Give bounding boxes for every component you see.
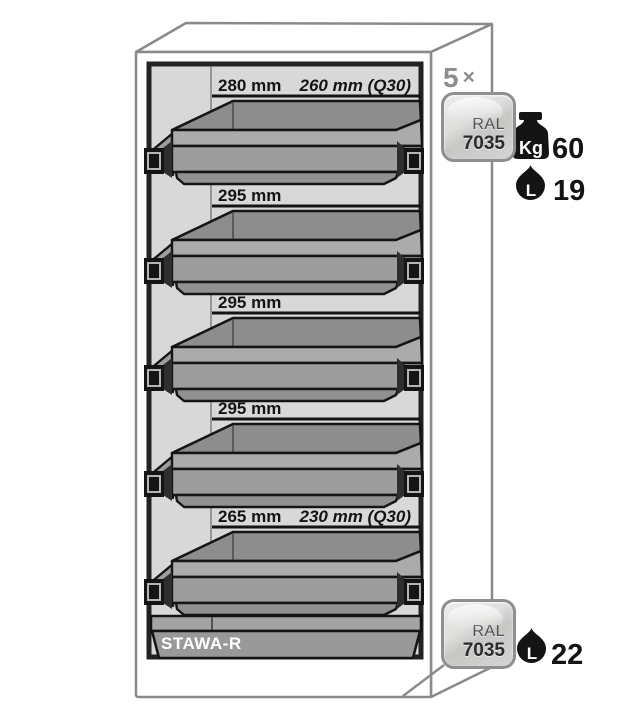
shelf-depth-label: 295 mm <box>218 294 281 311</box>
shelf-depth-label: 295 mm <box>218 187 281 204</box>
ral-color-badge-sump: RAL 7035 <box>441 599 516 669</box>
volume-unit-label-top: L <box>516 182 546 199</box>
volume-unit-label-bottom: L <box>517 645 547 662</box>
shelf-dimensions-row-3: 295 mm <box>212 290 411 311</box>
shelf-q30-depth-label: 230 mm (Q30) <box>300 508 412 525</box>
shelf-multiplier-count: 5 <box>443 62 459 93</box>
ral-name: RAL <box>472 117 505 134</box>
weight-unit-label: Kg <box>513 139 549 157</box>
shelf-q30-depth-label: 260 mm (Q30) <box>300 77 412 94</box>
sump-volume-value: 22 <box>551 641 583 670</box>
ral-color-badge-shelves: RAL 7035 <box>441 92 516 162</box>
shelf-depth-label: 295 mm <box>218 400 281 417</box>
product-diagram: 280 mm 260 mm (Q30) 295 mm 295 mm 295 mm… <box>0 0 629 718</box>
multiply-icon: × <box>463 66 475 89</box>
base-model-label: STAWA-R <box>161 635 242 652</box>
shelf-multiplier: 5× <box>443 64 475 92</box>
ral-code: 7035 <box>463 641 505 661</box>
shelf-depth-label: 265 mm <box>218 508 281 525</box>
cabinet-illustration <box>0 0 629 718</box>
ral-code: 7035 <box>463 134 505 154</box>
ral-name: RAL <box>472 624 505 641</box>
shelf-volume-value: 19 <box>553 177 585 206</box>
shelf-depth-label: 280 mm <box>218 77 281 94</box>
shelf-dimensions-row-1: 280 mm 260 mm (Q30) <box>212 73 411 94</box>
shelf-dimensions-row-4: 295 mm <box>212 396 411 417</box>
shelf-dimensions-row-5: 265 mm 230 mm (Q30) <box>212 504 411 525</box>
sump-top-band <box>151 616 421 631</box>
shelf-load-capacity-value: 60 <box>552 135 584 164</box>
shelf-dimensions-row-2: 295 mm <box>212 183 411 204</box>
